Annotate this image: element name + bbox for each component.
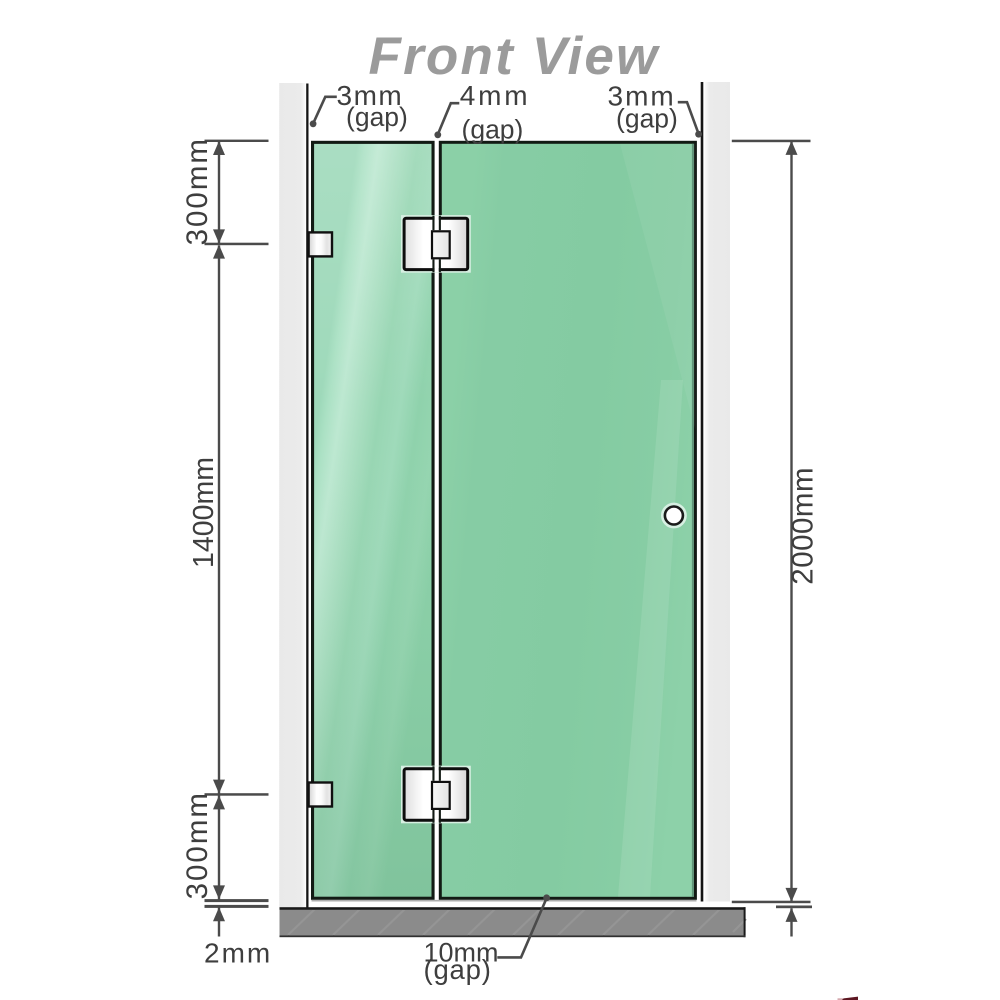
svg-text:4mm: 4mm (460, 80, 531, 111)
svg-text:Front View: Front View (369, 27, 662, 86)
svg-text:(gap): (gap) (346, 102, 408, 132)
svg-text:2mm: 2mm (204, 938, 272, 969)
svg-text:1400mm: 1400mm (188, 457, 220, 568)
svg-text:300mm: 300mm (181, 137, 214, 245)
svg-text:(gap): (gap) (616, 103, 678, 133)
svg-text:(gap): (gap) (424, 954, 492, 985)
svg-text:300mm: 300mm (181, 791, 214, 899)
svg-text:(gap): (gap) (462, 115, 524, 145)
svg-text:2000mm: 2000mm (786, 467, 819, 585)
